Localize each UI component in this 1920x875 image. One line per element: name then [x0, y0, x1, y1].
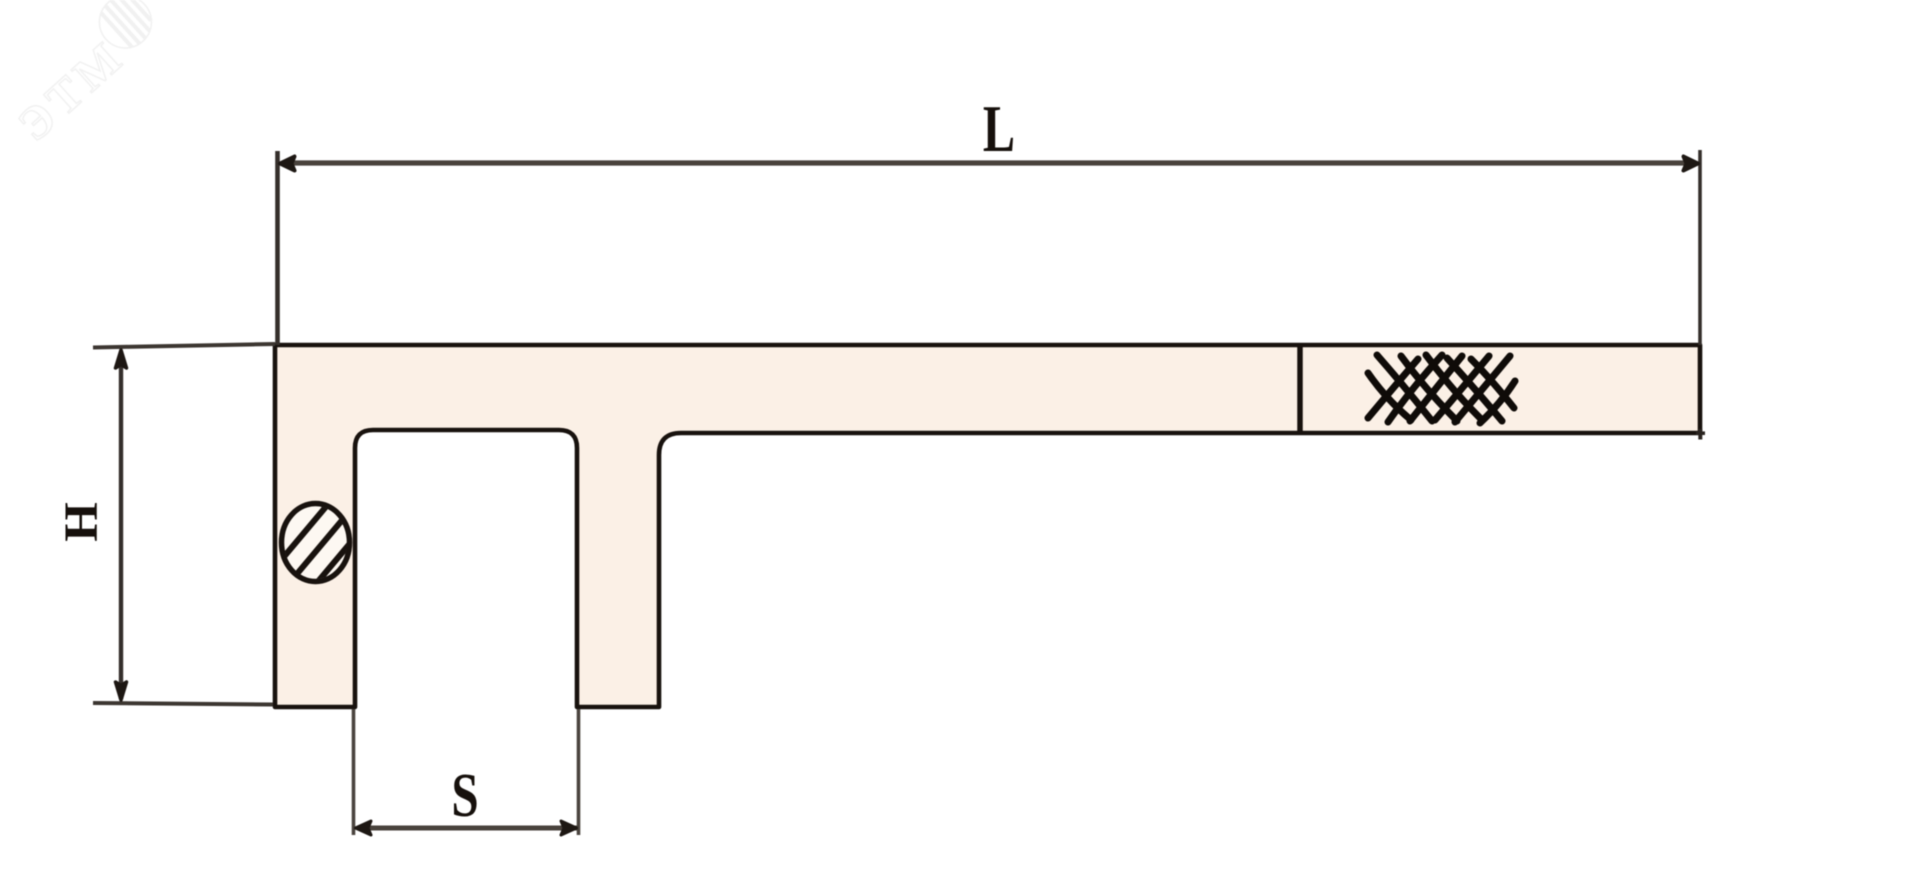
svg-text:ЭТМ: ЭТМ [8, 29, 136, 151]
svg-text:S: S [451, 761, 478, 830]
svg-text:L: L [983, 91, 1015, 166]
svg-text:H: H [54, 502, 107, 542]
